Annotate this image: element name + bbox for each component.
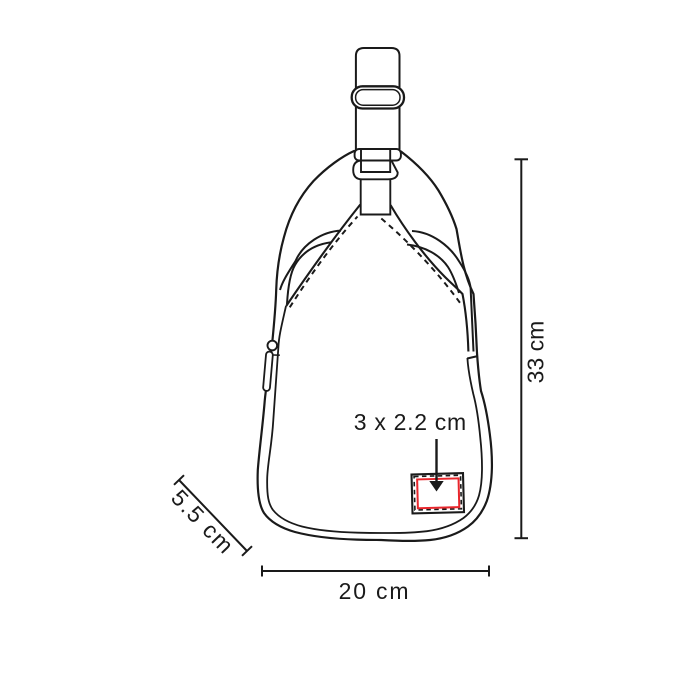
svg-text:33 cm: 33 cm (523, 321, 549, 384)
svg-text:3 x 2.2 cm: 3 x 2.2 cm (354, 409, 467, 435)
svg-text:20 cm: 20 cm (339, 578, 411, 604)
